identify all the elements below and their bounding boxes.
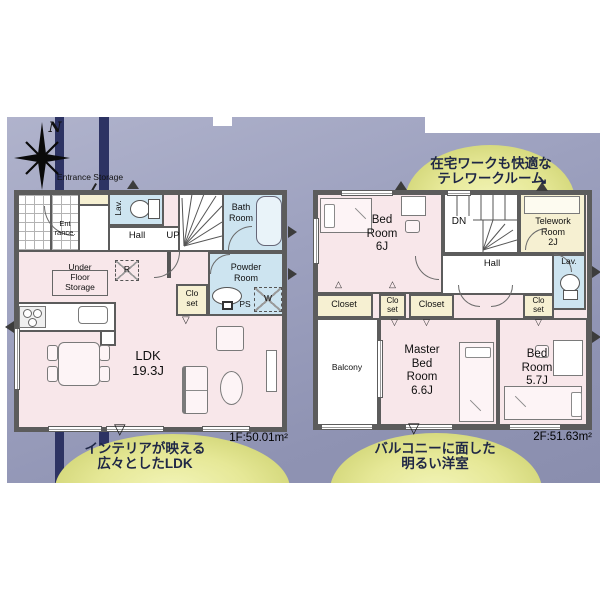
window xyxy=(447,190,471,196)
sofa xyxy=(182,366,208,414)
pipe-shaft xyxy=(222,301,233,310)
bed-fold-line xyxy=(470,400,481,411)
door-arc xyxy=(491,285,513,307)
closet-label: Clo set xyxy=(523,296,554,318)
entrance-closet xyxy=(78,204,110,252)
vent-icon xyxy=(127,180,139,189)
ldk-label: LDK 19.3J xyxy=(118,348,178,382)
stairs-1f xyxy=(178,190,224,252)
pillow-icon xyxy=(465,347,491,358)
area-label-2f: 2F:51.63m² xyxy=(474,431,592,443)
telework-room-label: Telework Room 2J xyxy=(525,216,581,250)
pillow-icon xyxy=(324,204,335,228)
closet-label: Clo set xyxy=(379,296,406,318)
window xyxy=(313,218,319,264)
vent-icon xyxy=(288,226,297,238)
compass-n-label: N xyxy=(44,120,66,138)
closet-door-mark-icon: △ xyxy=(389,280,396,289)
pillow-icon xyxy=(571,392,582,417)
entrance-storage-label: Entrance Storage xyxy=(50,172,130,184)
callout-telework-line2: テレワークルーム xyxy=(398,167,584,187)
closet-door-mark-icon: ▽ xyxy=(535,318,542,327)
kitchen-sink-icon xyxy=(78,306,108,324)
dining-chair xyxy=(99,366,110,382)
bedroom-6j-label: Bed Room 6J xyxy=(359,214,405,258)
powder-room-label: Powder Room xyxy=(214,262,278,284)
floor-plan-2f: Bed Room 6J DN Telework Room 2J Hall Lav… xyxy=(313,190,592,430)
closet-door-mark-icon: ▽ xyxy=(391,318,398,327)
floorplan-canvas: N 在宅ワークも快適な テレワークルーム ↘ インテリアが映える 広々としたLD… xyxy=(0,0,600,600)
counter-return xyxy=(100,330,116,346)
toilet-icon xyxy=(130,200,150,218)
coffee-table xyxy=(220,371,243,405)
closet-1f-label: Clo set xyxy=(176,288,208,312)
vent-icon xyxy=(288,268,297,280)
floor-plan-1f: Ent rance. Lav. Hall UP Bath Room Powder… xyxy=(14,190,287,432)
window xyxy=(341,190,393,196)
dining-chair xyxy=(47,345,58,361)
entrance-porch xyxy=(14,190,52,252)
hall-2f-label: Hall xyxy=(471,258,513,270)
window xyxy=(321,424,373,430)
hall-1f-label: Hall xyxy=(120,230,154,242)
closet-label: Closet xyxy=(315,299,373,311)
bath-room-label: Bath Room xyxy=(223,202,259,224)
panel-step xyxy=(425,117,600,133)
callout-telework-arrow-icon: ↘ xyxy=(534,172,550,188)
stairs-dn-label: DN xyxy=(445,216,473,228)
window xyxy=(48,426,102,432)
armchair xyxy=(216,326,244,351)
lavatory-2f-label: Lav. xyxy=(554,256,584,267)
vent-icon xyxy=(5,321,14,333)
vent-icon xyxy=(592,266,600,278)
fridge-label: R xyxy=(119,264,135,276)
window xyxy=(14,328,20,390)
entrance-label: Ent rance. xyxy=(50,220,80,240)
door-arc xyxy=(458,285,480,307)
toilet-tank-icon xyxy=(563,290,578,300)
panel-notch xyxy=(213,117,232,126)
balcony-label: Balcony xyxy=(323,362,371,373)
pipe-shaft-label: PS xyxy=(234,299,256,311)
under-floor-storage-label: Under Floor Storage xyxy=(50,262,110,300)
master-bedroom-label: Master Bed Room 6.6J xyxy=(393,344,451,398)
stairs-up-label: UP xyxy=(158,230,188,242)
callout-ldk-line2: 広々としたLDK xyxy=(52,452,238,472)
tv-board xyxy=(266,350,277,392)
desk xyxy=(524,196,580,214)
vent-icon xyxy=(592,331,600,343)
bathtub-icon xyxy=(256,196,282,246)
bed xyxy=(459,342,494,422)
burner-icon xyxy=(28,318,37,327)
window xyxy=(377,340,383,398)
stove-icon xyxy=(19,306,46,328)
lavatory-1f-label: Lav. xyxy=(113,196,125,220)
closet-label: Closet xyxy=(409,299,454,311)
chair xyxy=(405,220,420,233)
dining-chair xyxy=(47,366,58,382)
leader-triangle-icon: ▽ xyxy=(114,420,126,438)
window xyxy=(509,424,561,430)
washer-label: W xyxy=(260,293,276,305)
burner-icon xyxy=(23,309,32,318)
area-label-1f: 1F:50.01m² xyxy=(170,432,288,444)
toilet-tank-icon xyxy=(148,199,160,219)
closet-door-mark-icon: △ xyxy=(335,280,342,289)
door-arc xyxy=(154,252,180,278)
leader-triangle-icon: ▽ xyxy=(408,419,420,437)
closet-door-mark-icon: ▽ xyxy=(182,316,190,326)
callout-bedroom-line2: 明るい洋室 xyxy=(342,452,528,472)
bedroom-57j-label: Bed Room 5.7J xyxy=(509,348,565,392)
dining-table xyxy=(58,342,100,386)
dining-chair xyxy=(99,345,110,361)
burner-icon xyxy=(33,309,42,318)
bed-fold-line xyxy=(515,396,526,407)
desk xyxy=(401,196,426,216)
closet-door-mark-icon: ▽ xyxy=(423,318,430,327)
